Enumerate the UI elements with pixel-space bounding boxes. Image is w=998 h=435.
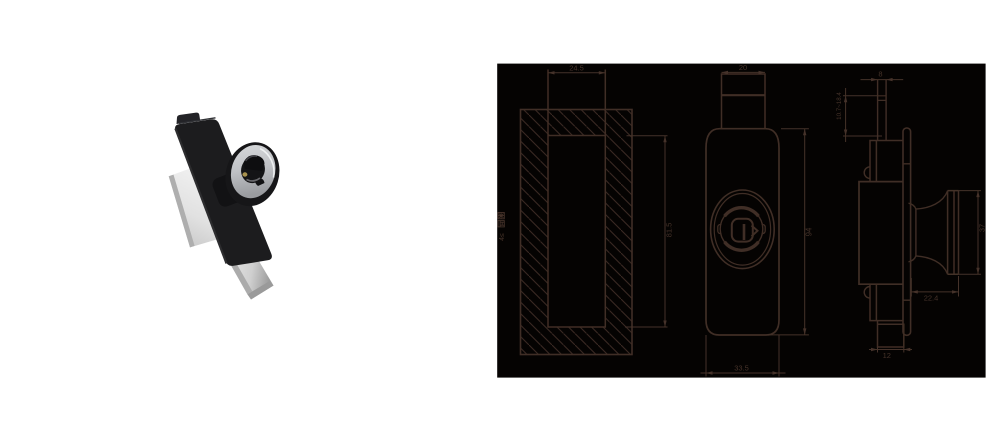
svg-text:24.5: 24.5: [569, 63, 584, 72]
svg-text:8: 8: [878, 70, 882, 79]
svg-text:10.7~18.4: 10.7~18.4: [836, 92, 843, 120]
svg-text:37: 37: [978, 224, 987, 232]
svg-text:94: 94: [804, 227, 813, 236]
svg-text:12: 12: [883, 351, 891, 360]
svg-text:22.4: 22.4: [924, 293, 939, 302]
svg-text:81.5: 81.5: [664, 223, 673, 238]
svg-text:33.5: 33.5: [734, 364, 749, 373]
svg-text:20: 20: [739, 63, 747, 72]
svg-text:4≤: 4≤: [499, 233, 506, 241]
